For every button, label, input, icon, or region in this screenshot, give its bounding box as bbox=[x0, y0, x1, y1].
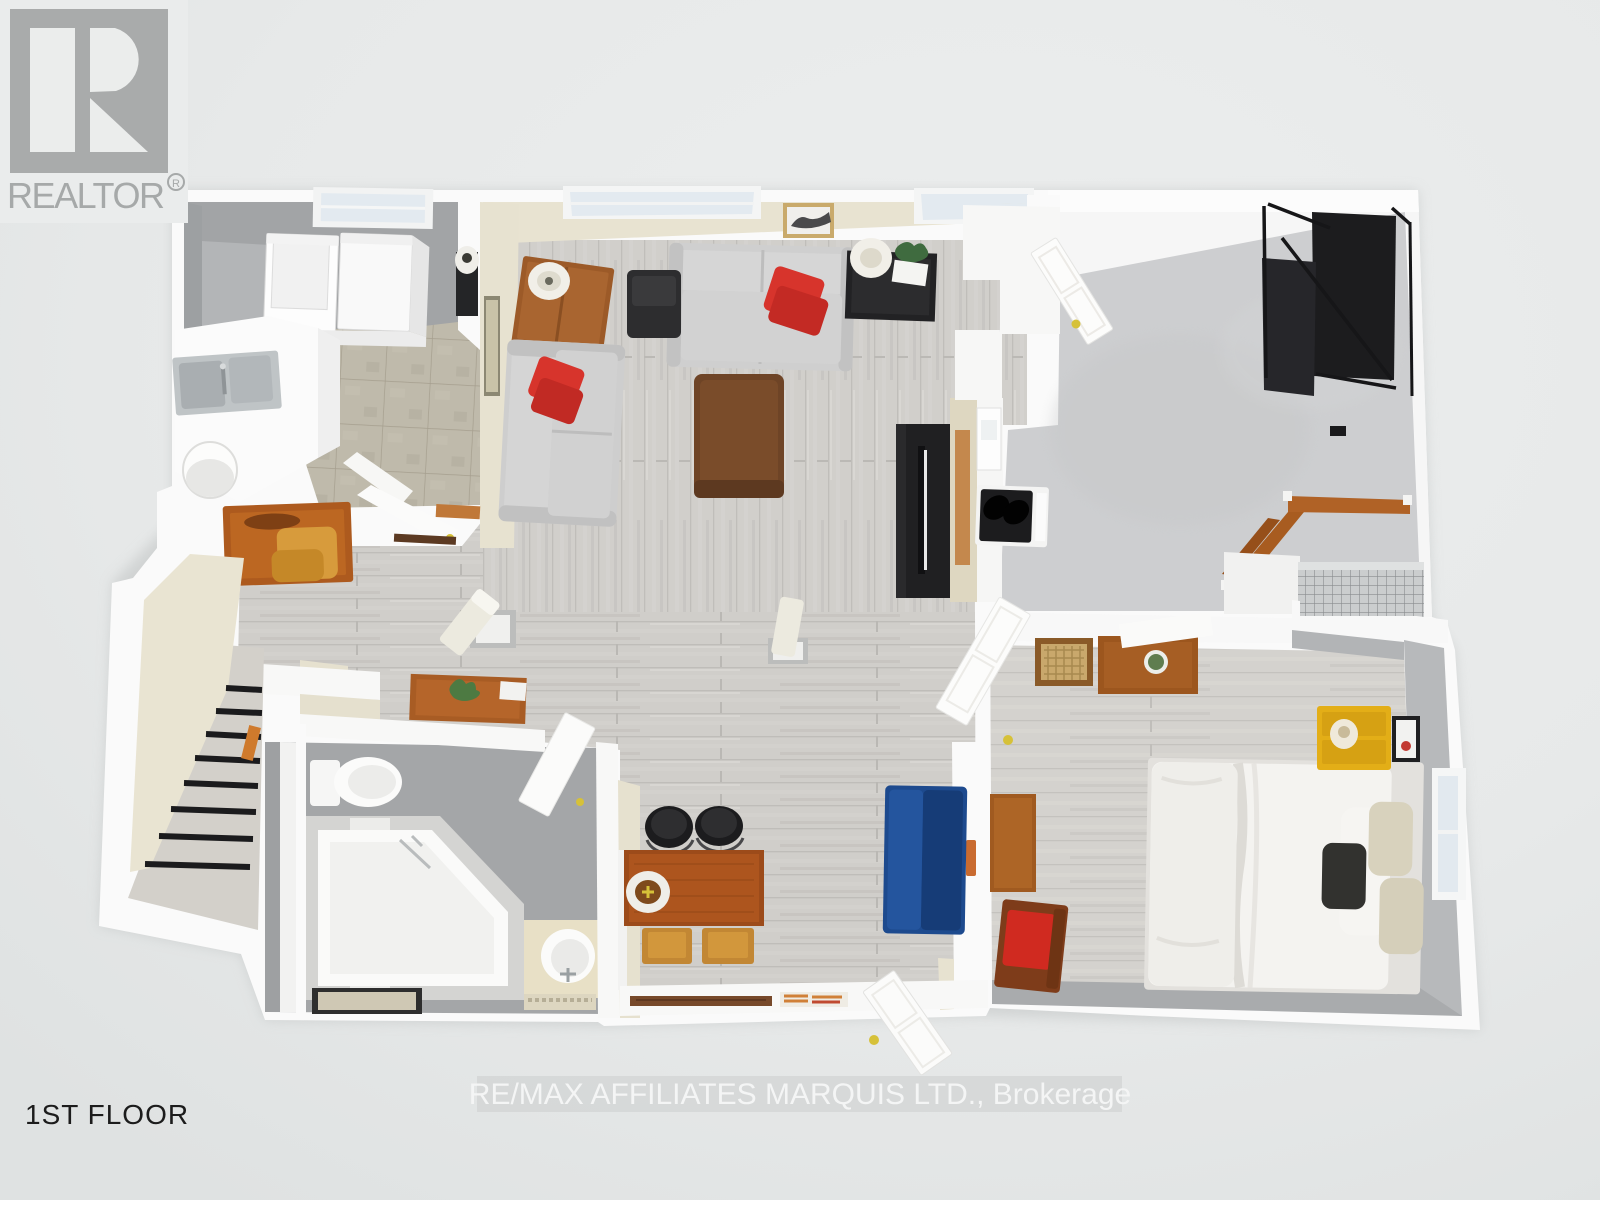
svg-text:REALTOR: REALTOR bbox=[7, 175, 165, 216]
svg-text:1ST FLOOR: 1ST FLOOR bbox=[25, 1099, 189, 1130]
svg-text:R: R bbox=[172, 178, 180, 190]
svg-text:RE/MAX AFFILIATES MARQUIS LTD.: RE/MAX AFFILIATES MARQUIS LTD., Brokerag… bbox=[469, 1078, 1131, 1111]
